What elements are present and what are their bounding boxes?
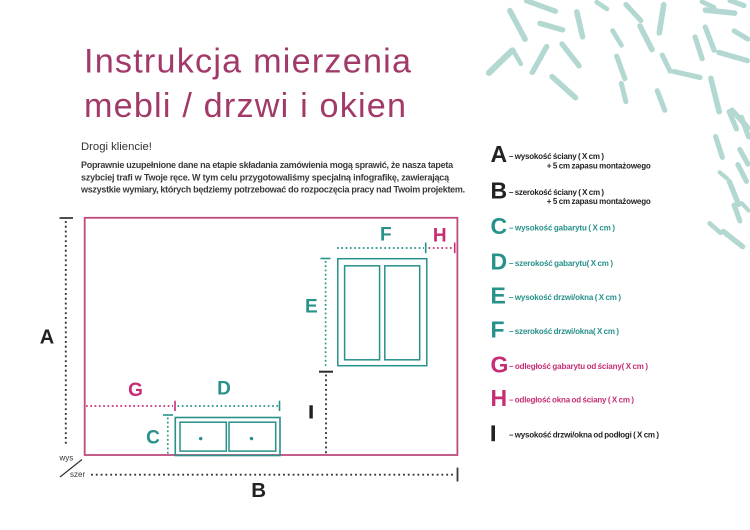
svg-text:B: B [491, 178, 508, 204]
svg-text:A: A [491, 141, 508, 167]
svg-text:+ 5 cm zapasu montażowego: + 5 cm zapasu montażowego [547, 161, 651, 170]
svg-text:F: F [491, 317, 505, 343]
svg-text:szer: szer [70, 470, 85, 479]
svg-text:G: G [128, 380, 143, 401]
svg-text:– odległość gabarytu od ściany: – odległość gabarytu od ściany( X cm ) [509, 362, 648, 371]
svg-text:D: D [217, 379, 231, 400]
svg-text:+ 5 cm zapasu montażowego: + 5 cm zapasu montażowego [547, 197, 651, 206]
svg-text:mebli / drzwi i okien: mebli / drzwi i okien [84, 87, 406, 125]
svg-text:E: E [305, 297, 318, 318]
svg-text:H: H [491, 385, 508, 411]
svg-text:wys: wys [59, 453, 74, 462]
svg-text:– odległość okna od ściany ( X: – odległość okna od ściany ( X cm ) [509, 396, 634, 405]
svg-text:B: B [251, 479, 266, 502]
svg-text:– szerokość ściany ( X cm ): – szerokość ściany ( X cm ) [509, 188, 604, 197]
svg-text:Instrukcja mierzenia: Instrukcja mierzenia [84, 43, 412, 81]
svg-text:C: C [146, 428, 160, 449]
svg-text:szybciej trafi w Twoje ręce. W: szybciej trafi w Twoje ręce. W tym celu … [81, 173, 450, 183]
svg-text:F: F [380, 225, 392, 246]
svg-text:Drogi kliencie!: Drogi kliencie! [81, 141, 152, 153]
svg-text:– szerokość drzwi/okna( X cm ): – szerokość drzwi/okna( X cm ) [509, 327, 619, 336]
svg-text:– wysokość drzwi/okna ( X cm ): – wysokość drzwi/okna ( X cm ) [509, 293, 621, 302]
svg-text:A: A [40, 327, 54, 349]
svg-text:– wysokość drzwi/okna od podło: – wysokość drzwi/okna od podłogi ( X cm … [509, 431, 659, 440]
svg-text:C: C [491, 213, 508, 239]
svg-text:D: D [491, 249, 508, 275]
svg-text:– wysokość gabarytu ( X cm ): – wysokość gabarytu ( X cm ) [509, 224, 615, 233]
svg-text:G: G [491, 352, 509, 378]
svg-text:– wysokość ściany ( X cm ): – wysokość ściany ( X cm ) [509, 152, 604, 161]
svg-text:E: E [491, 283, 506, 309]
svg-text:– szerokość gabarytu( X cm ): – szerokość gabarytu( X cm ) [509, 259, 613, 268]
svg-text:wszystkie wymiary, których będ: wszystkie wymiary, których będziemy potr… [80, 184, 465, 194]
svg-text:H: H [433, 226, 447, 247]
svg-text:Poprawnie uzupełnione dane na: Poprawnie uzupełnione dane na etapie skł… [81, 160, 454, 170]
